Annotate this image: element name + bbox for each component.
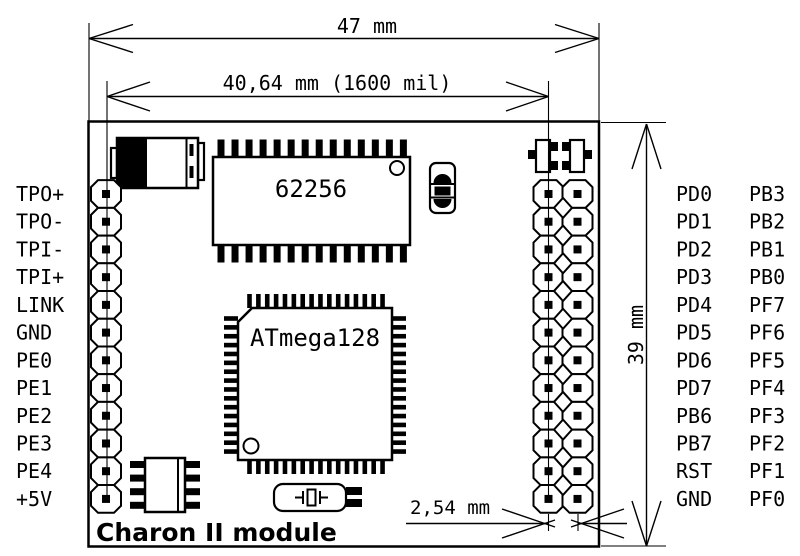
chip-pin [130, 475, 145, 482]
pin-label-right-col2: PF6 [749, 321, 785, 345]
chip-pin [309, 294, 314, 308]
chip-pin [232, 245, 239, 263]
pin-label-left: PE4 [16, 459, 52, 483]
chip-pin [265, 460, 270, 474]
pin-label-left: TPI- [16, 237, 64, 261]
pin-label-right-col2: PF4 [749, 376, 785, 400]
chip-pin [224, 343, 238, 348]
chip-pin [318, 294, 323, 308]
chip-pin [344, 245, 351, 263]
cap-tick [190, 166, 194, 178]
sram-label: 62256 [275, 175, 347, 203]
chip-pin [344, 140, 351, 158]
smd-body [536, 140, 550, 172]
chip-pin [224, 369, 238, 374]
pin-label-right-col1: PD6 [676, 348, 712, 372]
pad-hole [574, 329, 582, 337]
chip-pin [185, 475, 200, 482]
pin-label-right-col1: PB7 [676, 431, 712, 455]
chip-pin [246, 140, 253, 158]
chip-pin [327, 294, 332, 308]
chip-pin [302, 245, 309, 263]
resonator-pad [435, 187, 451, 196]
chip-pin [372, 245, 379, 263]
chip-pin [327, 460, 332, 474]
chip-pin [371, 460, 376, 474]
pin-label-right-col2: PB1 [749, 237, 785, 261]
chip-pin [400, 140, 407, 158]
pin-label-left: TPO- [16, 210, 64, 234]
pin-label-right-col1: PD2 [676, 237, 712, 261]
pin-label-right-col1: PD4 [676, 293, 712, 317]
chip-pin [336, 294, 341, 308]
chip-pin [302, 140, 309, 158]
chip-pin [224, 325, 238, 330]
chip-pin [130, 488, 145, 495]
pin-label-right-col1: PB6 [676, 404, 712, 428]
chip-pin [185, 488, 200, 495]
chip-pin [224, 405, 238, 410]
chip-pin [224, 414, 238, 419]
pad-hole [574, 384, 582, 392]
pad-hole [574, 190, 582, 198]
chip-pin [345, 460, 350, 474]
chip-pin [392, 369, 406, 374]
pad-hole [102, 273, 110, 281]
smd-body [570, 140, 584, 172]
pad-hole [574, 467, 582, 475]
chip-pin [224, 378, 238, 383]
chip-pin [292, 460, 297, 474]
chip-pin [224, 387, 238, 392]
chip-pin [318, 460, 323, 474]
chip-pin [392, 396, 406, 401]
pad-hole [574, 412, 582, 420]
chip-pin [300, 460, 305, 474]
chip-pin [392, 378, 406, 383]
crystal-pin [346, 499, 362, 507]
chip-pin [256, 460, 261, 474]
sram-chip: 62256 [213, 140, 410, 263]
pad-hole [574, 495, 582, 503]
pin-label-right-col1: PD1 [676, 210, 712, 234]
pin-label-right-col2: PF1 [749, 459, 785, 483]
pin-label-left: PE0 [16, 348, 52, 372]
chip-pin [330, 245, 337, 263]
pad-hole [574, 301, 582, 309]
chip-pin [392, 334, 406, 339]
chip-pin [288, 245, 295, 263]
chip-pin [392, 316, 406, 321]
pin-label-right-col1: PD7 [676, 376, 712, 400]
pad-hole [574, 439, 582, 447]
chip-pin [232, 140, 239, 158]
chip-pin [386, 140, 393, 158]
chip-pin [386, 245, 393, 263]
chip-pin [218, 140, 225, 158]
chip-pin [354, 294, 359, 308]
pad-hole [102, 356, 110, 364]
chip-pin [392, 440, 406, 445]
chip-pin [380, 460, 385, 474]
chip-pin [246, 245, 253, 263]
pad-hole [102, 384, 110, 392]
chip-pin [185, 502, 200, 509]
chip-pin [358, 140, 365, 158]
chip-pin [224, 334, 238, 339]
chip-pin [316, 245, 323, 263]
pad-hole [102, 218, 110, 226]
chip-pin [185, 461, 200, 468]
chip-pin [392, 352, 406, 357]
chip-pin [260, 245, 267, 263]
pin-label-right-col2: PF7 [749, 293, 785, 317]
charon-module-diagram: 62256 ATmega128 [0, 0, 800, 556]
pin-label-right-col2: PF0 [749, 487, 785, 511]
chip-pin [265, 294, 270, 308]
pad-hole [102, 245, 110, 253]
pin-label-right-col2: PF5 [749, 348, 785, 372]
chip-pin [336, 460, 341, 474]
crystal-pin [346, 487, 362, 495]
chip-pin [392, 405, 406, 410]
pin-label-left: PE3 [16, 431, 52, 455]
chip-pin [224, 361, 238, 366]
chip-pin [224, 449, 238, 454]
dim-board-height: 39 mm [601, 123, 666, 547]
chip-pin [345, 294, 350, 308]
chip-pin [247, 294, 252, 308]
chip-pin [372, 140, 379, 158]
resonator [430, 163, 455, 213]
chip-pin [224, 440, 238, 445]
pad-hole [574, 245, 582, 253]
pin-label-right-col2: PB2 [749, 210, 785, 234]
cap-polarity-mark [117, 138, 147, 188]
chip-pin [247, 460, 252, 474]
pin-label-right-col2: PF3 [749, 404, 785, 428]
mcu-chip: ATmega128 [224, 294, 406, 474]
chip-pin [392, 387, 406, 392]
chip-pin [283, 294, 288, 308]
pad-hole [102, 329, 110, 337]
pin-label-left: TPO+ [16, 182, 64, 206]
chip-pin [392, 361, 406, 366]
dim-pitch-label: 2,54 mm [410, 497, 490, 519]
pin-label-right-col1: PD0 [676, 182, 712, 206]
pad-hole [574, 356, 582, 364]
chip-pin [371, 294, 376, 308]
chip-pin [316, 140, 323, 158]
chip-pin [224, 423, 238, 428]
pin-label-left: +5V [16, 487, 52, 511]
chip-pin [309, 460, 314, 474]
chip-pin [392, 414, 406, 419]
pin-label-left: TPI+ [16, 265, 64, 289]
chip-pin [392, 449, 406, 454]
chip-pin [292, 294, 297, 308]
chip-pin [380, 294, 385, 308]
mcu-label: ATmega128 [250, 324, 380, 352]
pad-hole [102, 439, 110, 447]
chip-pin [274, 294, 279, 308]
chip-pin [400, 245, 407, 263]
chip-pin [224, 396, 238, 401]
pad-hole [102, 495, 110, 503]
pad-hole [102, 190, 110, 198]
pad-hole [102, 412, 110, 420]
right-pin-header [534, 180, 593, 513]
board-title: Charon II module [96, 518, 337, 547]
pin-label-right-col1: PD3 [676, 265, 712, 289]
pin-label-right-col2: PF2 [749, 431, 785, 455]
chip-pin [392, 343, 406, 348]
chip-pin [283, 460, 288, 474]
chip-pin [363, 294, 368, 308]
chip-pin [392, 325, 406, 330]
pin-label-left: PE2 [16, 404, 52, 428]
chip-pin [224, 316, 238, 321]
chip-pin [130, 502, 145, 509]
pin-label-left: LINK [16, 293, 64, 317]
dim-span-label: 40,64 mm (1600 mil) [223, 71, 452, 95]
chip-pin [358, 245, 365, 263]
chip-pin [274, 460, 279, 474]
pad-hole [102, 467, 110, 475]
pad-hole [574, 273, 582, 281]
diagram-canvas: 62256 ATmega128 [0, 0, 800, 556]
pad-hole [574, 218, 582, 226]
dim-width-label: 47 mm [337, 14, 397, 38]
chip-pin [130, 461, 145, 468]
chip-pin [392, 432, 406, 437]
pin-label-left: PE1 [16, 376, 52, 400]
pin-label-right-col1: RST [676, 459, 712, 483]
pad-hole [102, 301, 110, 309]
left-pin-labels: TPO+TPO-TPI-TPI+LINKGNDPE0PE1PE2PE3PE4+5… [16, 182, 64, 511]
pin-label-right-col1: GND [676, 487, 712, 511]
chip-pin [330, 140, 337, 158]
cap-tick [190, 144, 194, 156]
chip-pin [224, 352, 238, 357]
chip-pin [300, 294, 305, 308]
pin-label-right-col2: PB0 [749, 265, 785, 289]
dim-height-label: 39 mm [624, 305, 648, 365]
chip-pin [354, 460, 359, 474]
chip-pin [256, 294, 261, 308]
chip-pin [260, 140, 267, 158]
chip-pin [274, 245, 281, 263]
chip-pin [224, 432, 238, 437]
pin-label-right-col1: PD5 [676, 321, 712, 345]
chip-pin [274, 140, 281, 158]
chip-pin [218, 245, 225, 263]
capacitor-polarized [111, 138, 204, 188]
chip-pin [288, 140, 295, 158]
crystal-body [274, 484, 346, 511]
right-pin-labels: PD0PD1PD2PD3PD4PD5PD6PD7PB6PB7RSTGNDPB3P… [676, 182, 785, 511]
pin-label-left: GND [16, 321, 52, 345]
pin-label-right-col2: PB3 [749, 182, 785, 206]
chip-pin [363, 460, 368, 474]
chip-pin [392, 423, 406, 428]
